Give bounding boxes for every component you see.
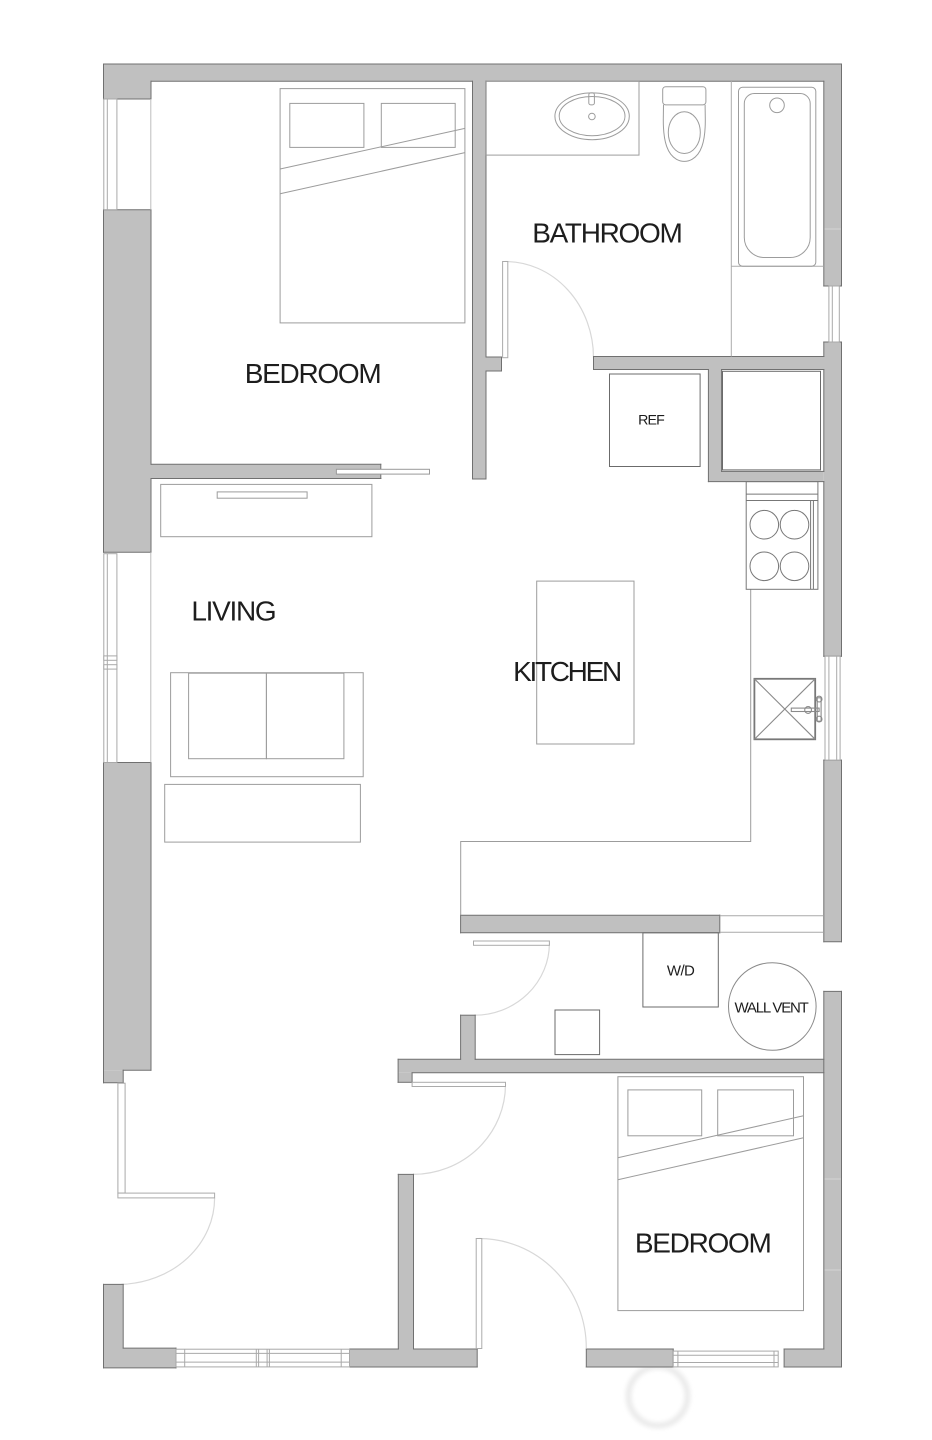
svg-text:REF: REF [638, 413, 665, 429]
svg-text:KITCHEN: KITCHEN [513, 656, 620, 687]
svg-text:BEDROOM: BEDROOM [245, 358, 381, 389]
svg-text:W/D: W/D [667, 962, 695, 979]
svg-text:WALL VENT: WALL VENT [735, 999, 809, 1016]
svg-text:BATHROOM: BATHROOM [532, 217, 681, 248]
svg-text:BEDROOM: BEDROOM [635, 1228, 771, 1259]
svg-text:LIVING: LIVING [191, 596, 275, 627]
